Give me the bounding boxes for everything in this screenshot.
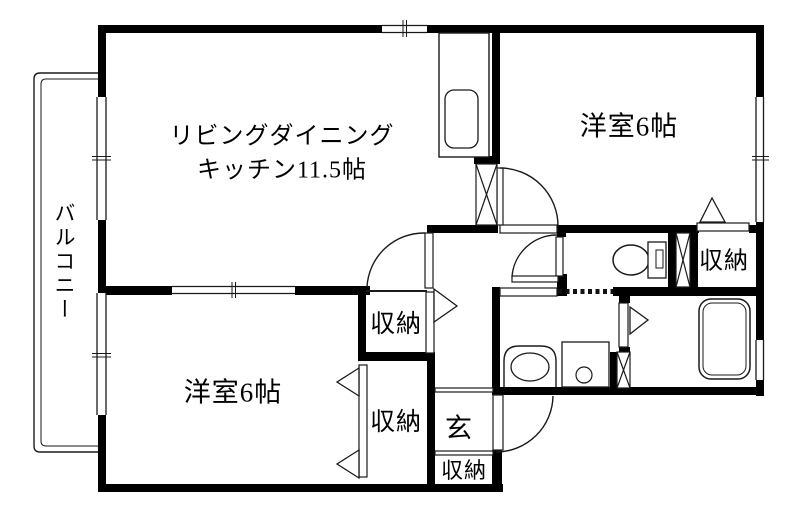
kitchen-counter: [439, 33, 489, 157]
window-left-upper: [92, 97, 111, 220]
window-bathroom: [756, 340, 765, 380]
wall-left: [98, 25, 106, 492]
washing-machine-pan: [562, 342, 609, 387]
bathtub: [699, 299, 750, 379]
door-closet-hall: [426, 292, 434, 353]
label-bedroom-top-right: 洋室6帖: [580, 105, 679, 144]
label-ldk-line1: リビングダイニング: [170, 116, 395, 151]
doorway-toilet: [556, 237, 563, 276]
sliding-door-ldk-bedroom: [172, 282, 295, 298]
label-closet-bedroom: 収納: [370, 402, 422, 438]
entrance-door: [493, 395, 503, 450]
toilet-fixture: [613, 242, 666, 278]
fold-mark-closet-hall: [434, 289, 457, 322]
door-arc-ldk: [367, 233, 425, 287]
doorway-washroom: [500, 288, 557, 296]
fold-mark-bathroom: [630, 307, 648, 334]
door-closet-bedroom: [359, 365, 367, 477]
fold-mark-closet-bedroom-1: [337, 368, 359, 396]
label-closet-entrance: 収納: [441, 453, 487, 485]
doorway-ldk: [425, 233, 433, 288]
window-left-lower: [92, 293, 111, 415]
label-entrance: 玄: [445, 407, 473, 446]
pipe-shaft-kitchen: [476, 164, 497, 225]
washbasin: [504, 346, 556, 387]
label-closet-top-right: 収納: [699, 241, 749, 276]
doorway-bedroom-tr: [500, 225, 557, 233]
window-right-upper: [752, 97, 769, 222]
entrance-threshold: [435, 388, 493, 392]
pipe-shaft-washroom: [617, 352, 630, 388]
label-closet-hall: 収納: [370, 304, 422, 340]
door-arc-entrance: [496, 396, 553, 452]
door-leaf-bedroom-tr: [497, 168, 503, 225]
label-ldk-line2: キッチン11.5帖: [197, 150, 367, 185]
wall-top: [98, 25, 764, 33]
door-bathroom: [619, 303, 628, 347]
label-bedroom-bottom-left: 洋室6帖: [184, 371, 283, 410]
floorplan: バルコニー リビングダイニング キッチン11.5帖 洋室6帖 洋室6帖 収納 収…: [0, 0, 800, 511]
door-arc-bedroom-tr: [500, 168, 558, 226]
fold-mark-closet-top-right: [700, 198, 725, 222]
label-balcony: バルコニー: [49, 202, 79, 322]
wall-bottom-left: [98, 484, 503, 492]
pipe-shaft-toilet: [676, 233, 690, 287]
window-kitchen-top: [382, 20, 427, 37]
kitchen-sink: [445, 90, 478, 148]
door-arc-toilet: [512, 235, 557, 277]
fold-mark-closet-bedroom-2: [337, 450, 359, 478]
door-closet-top-right: [697, 223, 749, 231]
door-leaf-toilet: [512, 276, 558, 282]
